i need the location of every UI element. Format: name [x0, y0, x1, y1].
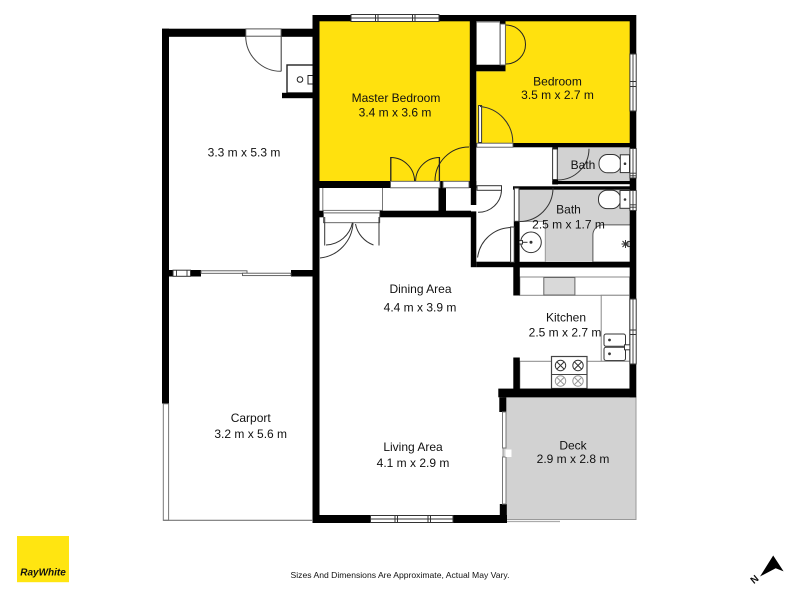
svg-text:RayWhite: RayWhite: [20, 568, 66, 579]
svg-text:Living Area: Living Area: [383, 440, 443, 454]
svg-text:Dining Area: Dining Area: [389, 282, 451, 296]
svg-text:Bath: Bath: [571, 158, 596, 172]
svg-text:2.9 m x 2.8 m: 2.9 m x 2.8 m: [537, 452, 610, 466]
svg-text:3.4 m x 3.6 m: 3.4 m x 3.6 m: [359, 106, 432, 120]
svg-text:4.4 m x 3.9 m: 4.4 m x 3.9 m: [384, 301, 457, 315]
svg-text:Carport: Carport: [231, 411, 272, 425]
svg-text:3.3 m x 5.3 m: 3.3 m x 5.3 m: [208, 146, 281, 160]
svg-text:Master Bedroom: Master Bedroom: [352, 91, 441, 105]
svg-text:3.5 m x 2.7 m: 3.5 m x 2.7 m: [521, 88, 594, 102]
svg-text:2.5 m x 2.7 m: 2.5 m x 2.7 m: [529, 326, 602, 340]
svg-text:Sizes And Dimensions Are Appro: Sizes And Dimensions Are Approximate, Ac…: [291, 570, 510, 580]
svg-text:Deck: Deck: [559, 439, 587, 453]
svg-text:Bedroom: Bedroom: [533, 75, 582, 89]
svg-text:2.5 m x 1.7 m: 2.5 m x 1.7 m: [532, 218, 605, 232]
svg-text:Bath: Bath: [556, 203, 581, 217]
svg-text:4.1 m x 2.9 m: 4.1 m x 2.9 m: [377, 456, 450, 470]
svg-text:3.2 m x 5.6 m: 3.2 m x 5.6 m: [214, 427, 287, 441]
svg-text:Kitchen: Kitchen: [546, 311, 586, 325]
